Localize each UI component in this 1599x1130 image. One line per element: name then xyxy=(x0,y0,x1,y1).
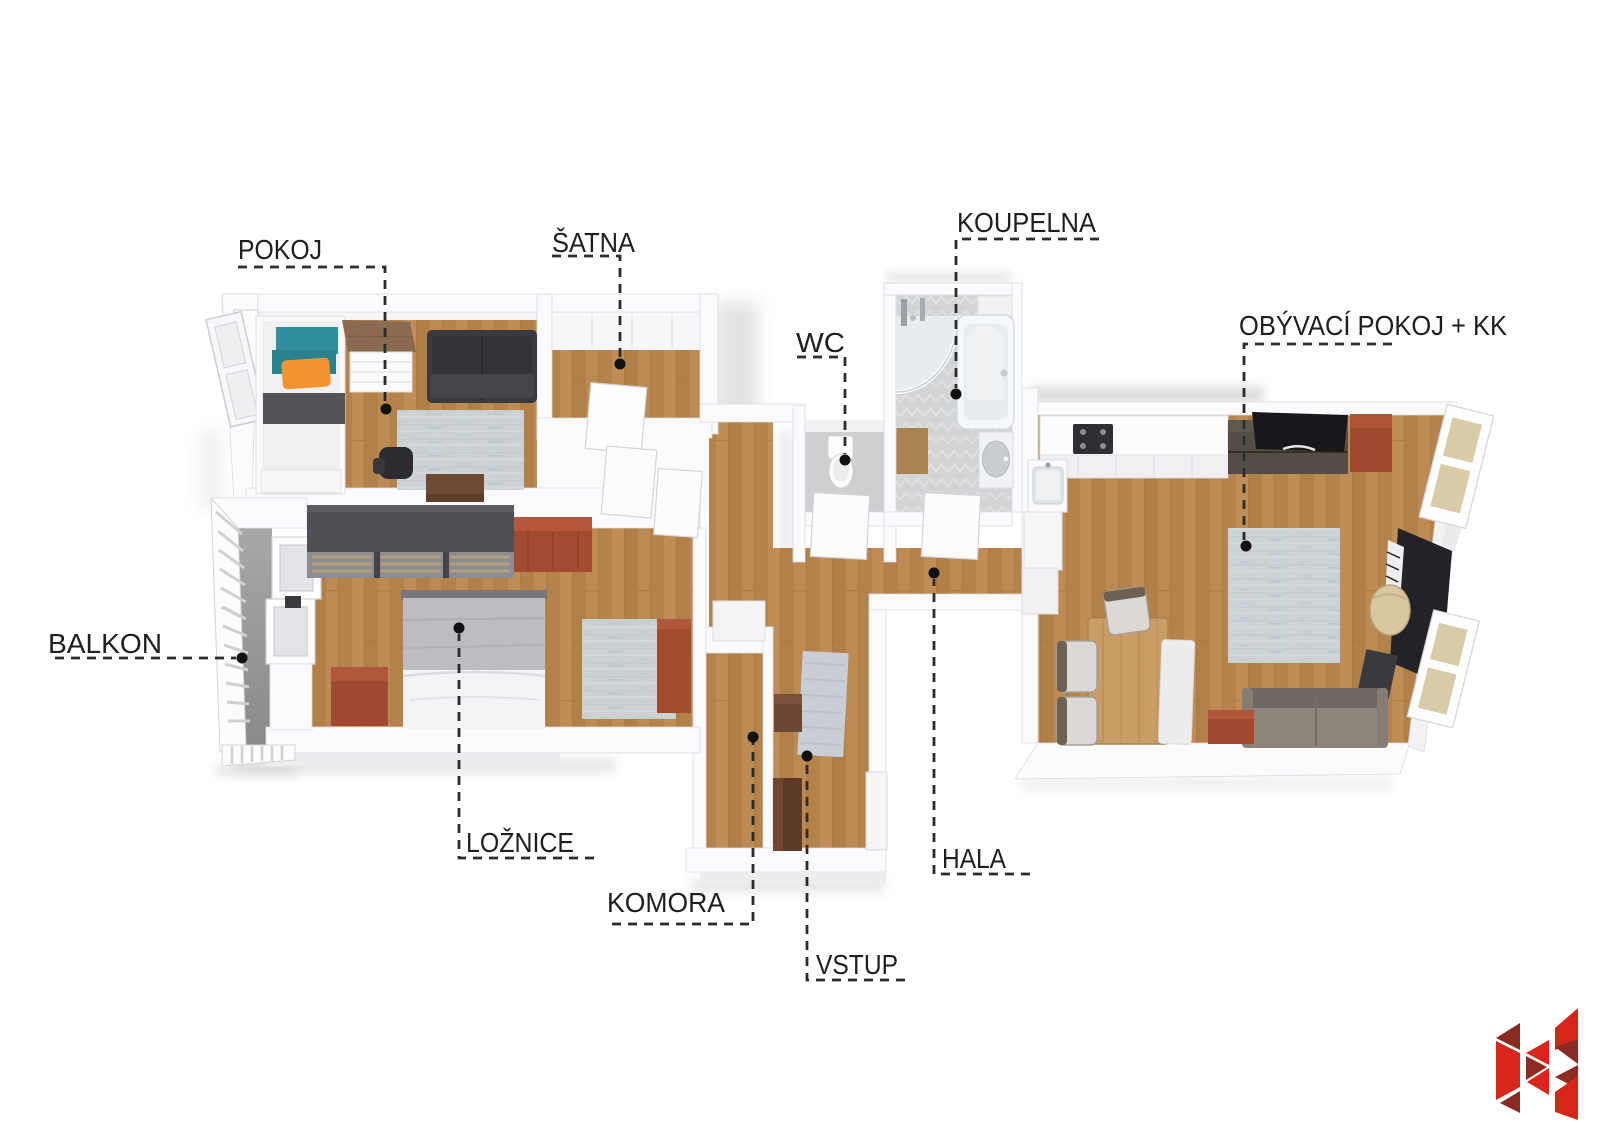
svg-text:OBÝVACÍ POKOJ + KK: OBÝVACÍ POKOJ + KK xyxy=(1239,310,1507,341)
svg-text:WC: WC xyxy=(796,327,845,358)
svg-text:POKOJ: POKOJ xyxy=(238,234,322,265)
svg-text:KOUPELNA: KOUPELNA xyxy=(957,207,1096,238)
svg-text:LOŽNICE: LOŽNICE xyxy=(466,827,574,858)
svg-text:BALKON: BALKON xyxy=(48,628,162,659)
svg-text:KOMORA: KOMORA xyxy=(607,887,725,918)
svg-text:VSTUP: VSTUP xyxy=(816,949,898,980)
svg-text:ŠATNA: ŠATNA xyxy=(552,227,635,258)
svg-text:HALA: HALA xyxy=(942,843,1006,874)
